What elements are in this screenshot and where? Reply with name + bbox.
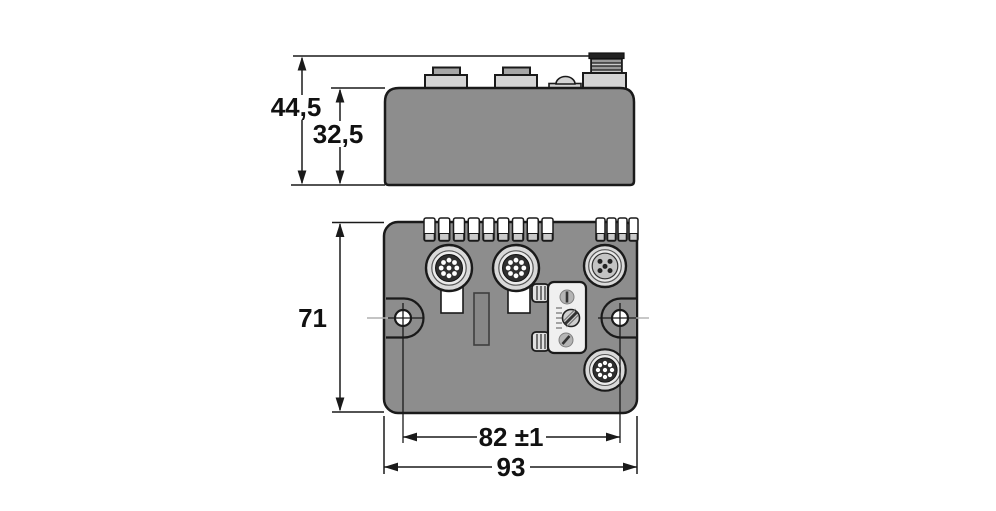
label-tab-band	[425, 234, 434, 241]
dimension-label-71: 71	[298, 303, 327, 333]
dimension-label-32-5: 32,5	[313, 119, 364, 149]
dimension-label-93: 93	[497, 452, 526, 482]
dimension-width: 93	[384, 452, 637, 482]
dimension-hole-spacing: 82 ±1	[403, 422, 620, 452]
label-tab-band	[543, 234, 552, 241]
dimension-label-44-5: 44,5	[271, 92, 322, 122]
label-tab-band	[619, 234, 626, 241]
technical-drawing-canvas: 44,5 32,5	[0, 0, 996, 511]
label-tab-band	[499, 234, 508, 241]
label-tab-band	[608, 234, 615, 241]
label-tab-band	[440, 234, 449, 241]
center-slot	[474, 293, 489, 345]
label-tab-band	[597, 234, 604, 241]
side-view: 44,5 32,5	[271, 53, 634, 185]
label-tab-band	[469, 234, 478, 241]
pressure-vent	[549, 77, 581, 89]
label-tab-band	[484, 234, 493, 241]
label-tab-band	[454, 234, 463, 241]
label-tab-band	[528, 234, 537, 241]
side-view-housing	[385, 88, 634, 185]
drawing-svg: 44,5 32,5	[0, 0, 996, 511]
label-tab-band	[513, 234, 522, 241]
dimension-label-82: 82 ±1	[479, 422, 544, 452]
adjust-screw	[563, 309, 580, 327]
m12-port-1	[426, 245, 472, 291]
front-view: 71 82 ±1 93	[298, 218, 649, 482]
m12-port-2	[493, 245, 539, 291]
connector-boss-2	[495, 68, 537, 90]
label-tabs-group-0	[424, 218, 553, 241]
dimension-front-height: 71	[298, 223, 344, 412]
m12-male-connector	[583, 53, 626, 89]
connector-boss-1	[425, 68, 467, 90]
m12-port-3	[584, 245, 626, 287]
label-tab-band	[630, 234, 637, 241]
